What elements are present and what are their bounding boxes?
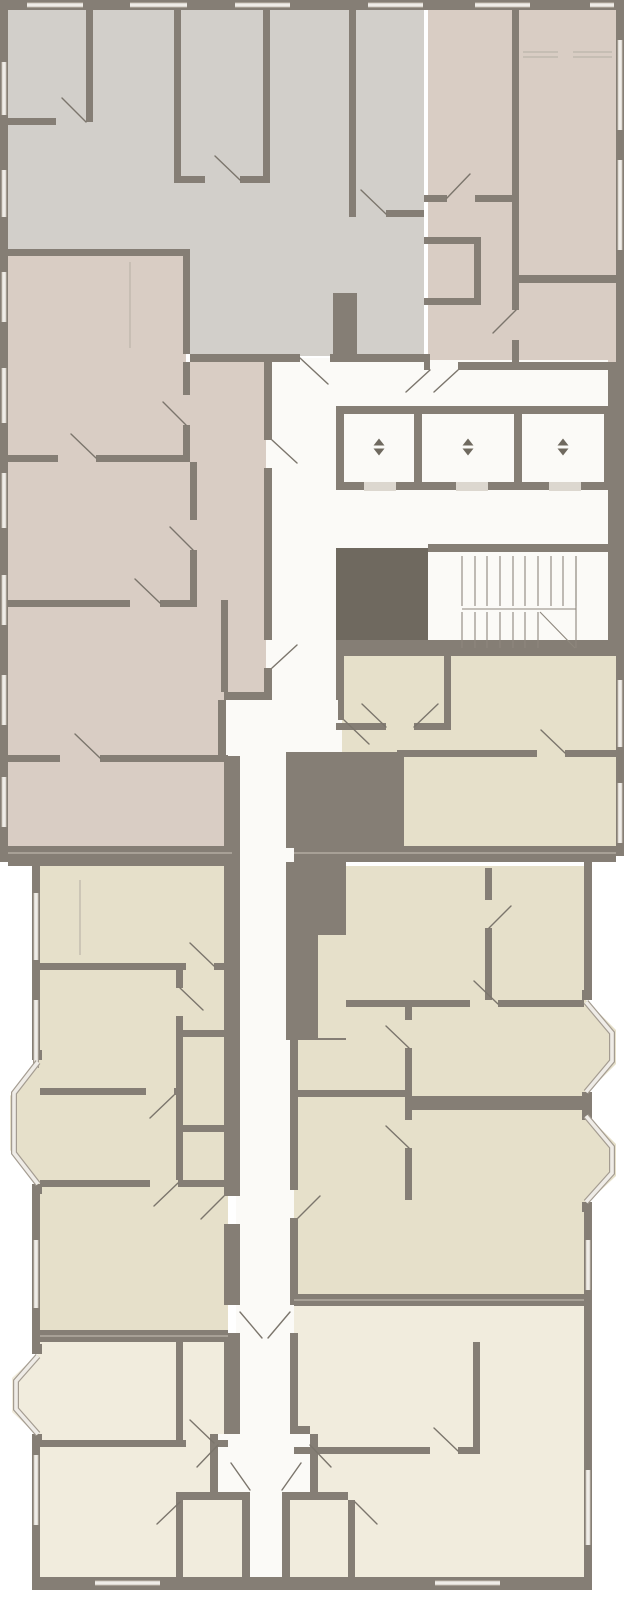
- corridor-end-sliver: [250, 1496, 282, 1577]
- wall-mass-a: [286, 752, 398, 848]
- elevator-sill: [364, 482, 396, 491]
- stairwell-area: [428, 552, 608, 640]
- storage-niche: [318, 935, 346, 1038]
- elevator-car-1-cab: [344, 414, 414, 482]
- mid-lobby: [272, 484, 608, 552]
- corridor-jog-hall: [226, 696, 342, 756]
- elevator-bank: [344, 414, 604, 491]
- elevator-car-2-cab: [422, 414, 514, 482]
- elevator-car-1: [344, 414, 414, 482]
- unit-top-right-floor: [428, 8, 616, 366]
- floor-plan-page: [0, 0, 624, 1600]
- floor-plan-drawing: [0, 0, 624, 1600]
- elevator-sill: [456, 482, 488, 491]
- unit-bottom-left-floor: [40, 1334, 228, 1581]
- elevator-car-2: [422, 414, 514, 482]
- elevator-car-3-cab: [522, 414, 604, 482]
- dark-shaft-by-stairs: [336, 548, 428, 648]
- elevator-sill: [549, 482, 581, 491]
- corridor-lower: [236, 752, 294, 1438]
- elevator-car-3: [522, 414, 604, 482]
- unit-bottom-right-floor: [294, 1300, 584, 1581]
- unit-lower-left-floor: [40, 866, 228, 1334]
